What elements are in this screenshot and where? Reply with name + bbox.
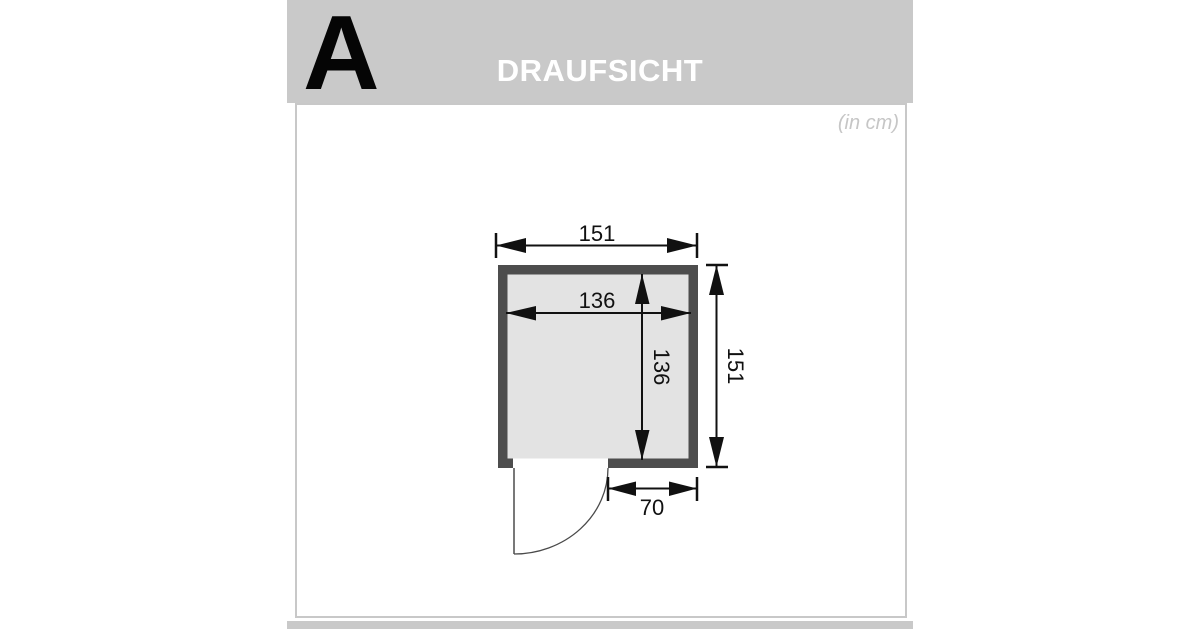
arrow-up-icon <box>709 265 724 295</box>
dim-label-inner-height: 136 <box>649 349 674 386</box>
page: A DRAUFSICHT (in cm) 151 <box>0 0 1200 629</box>
arrow-right-icon <box>667 238 697 253</box>
door-swing-arc <box>514 468 608 554</box>
arrow-left-icon <box>608 482 636 497</box>
dim-label-inner-width: 136 <box>579 288 616 313</box>
dim-outer-height: 151 <box>706 265 748 467</box>
dim-label-outer-width: 151 <box>579 221 616 246</box>
dim-outer-width: 151 <box>496 221 697 258</box>
arrow-right-icon <box>669 482 697 497</box>
floor-plan-drawing: 151 151 136 136 <box>0 0 1200 629</box>
door-opening <box>513 459 608 469</box>
dim-label-outer-height: 151 <box>723 348 748 385</box>
arrow-down-icon <box>709 437 724 467</box>
dim-label-door-clearance: 70 <box>640 495 664 520</box>
arrow-left-icon <box>496 238 526 253</box>
dim-door-clearance: 70 <box>608 477 697 520</box>
